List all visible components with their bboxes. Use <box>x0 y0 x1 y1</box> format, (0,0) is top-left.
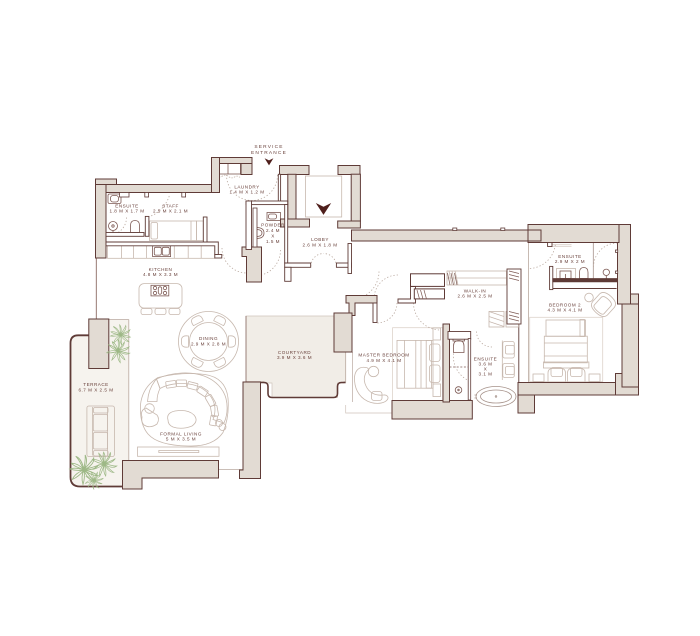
svg-text:2.5 M X 2.1 M: 2.5 M X 2.1 M <box>153 208 188 213</box>
svg-text:2.6 M X 2.5 M: 2.6 M X 2.5 M <box>457 294 492 299</box>
svg-text:ENTRANCE: ENTRANCE <box>251 150 287 156</box>
svg-text:TERRACE: TERRACE <box>83 382 108 387</box>
svg-text:5 M X 3.5 M: 5 M X 3.5 M <box>166 437 196 442</box>
svg-text:6.7 M X 2.5 M: 6.7 M X 2.5 M <box>78 387 113 392</box>
svg-text:4.8 M X 3.3 M: 4.8 M X 3.3 M <box>143 272 178 277</box>
svg-text:3.1 M: 3.1 M <box>479 371 493 376</box>
svg-text:2.6 M X 1.8 M: 2.6 M X 1.8 M <box>302 243 337 248</box>
svg-text:2.9 M X 2 M: 2.9 M X 2 M <box>555 259 585 264</box>
svg-text:1.8 M X 1.7 M: 1.8 M X 1.7 M <box>109 208 144 213</box>
svg-text:4.9 M X 4.1 M: 4.9 M X 4.1 M <box>366 358 401 363</box>
svg-text:2.9 M X 2.8 M: 2.9 M X 2.8 M <box>191 341 226 346</box>
svg-text:2.4 M: 2.4 M <box>266 228 280 233</box>
svg-text:3.9 M X 3.6 M: 3.9 M X 3.6 M <box>277 355 312 360</box>
svg-text:LOBBY: LOBBY <box>311 237 329 242</box>
svg-text:X: X <box>271 234 275 239</box>
svg-text:4.3 M X 4.1 M: 4.3 M X 4.1 M <box>547 308 582 313</box>
svg-text:SERVICE: SERVICE <box>254 144 283 150</box>
svg-text:POWDER: POWDER <box>261 223 285 228</box>
svg-text:1.5 M: 1.5 M <box>266 239 280 244</box>
svg-text:1.4 M X 1.2 M: 1.4 M X 1.2 M <box>229 190 264 195</box>
